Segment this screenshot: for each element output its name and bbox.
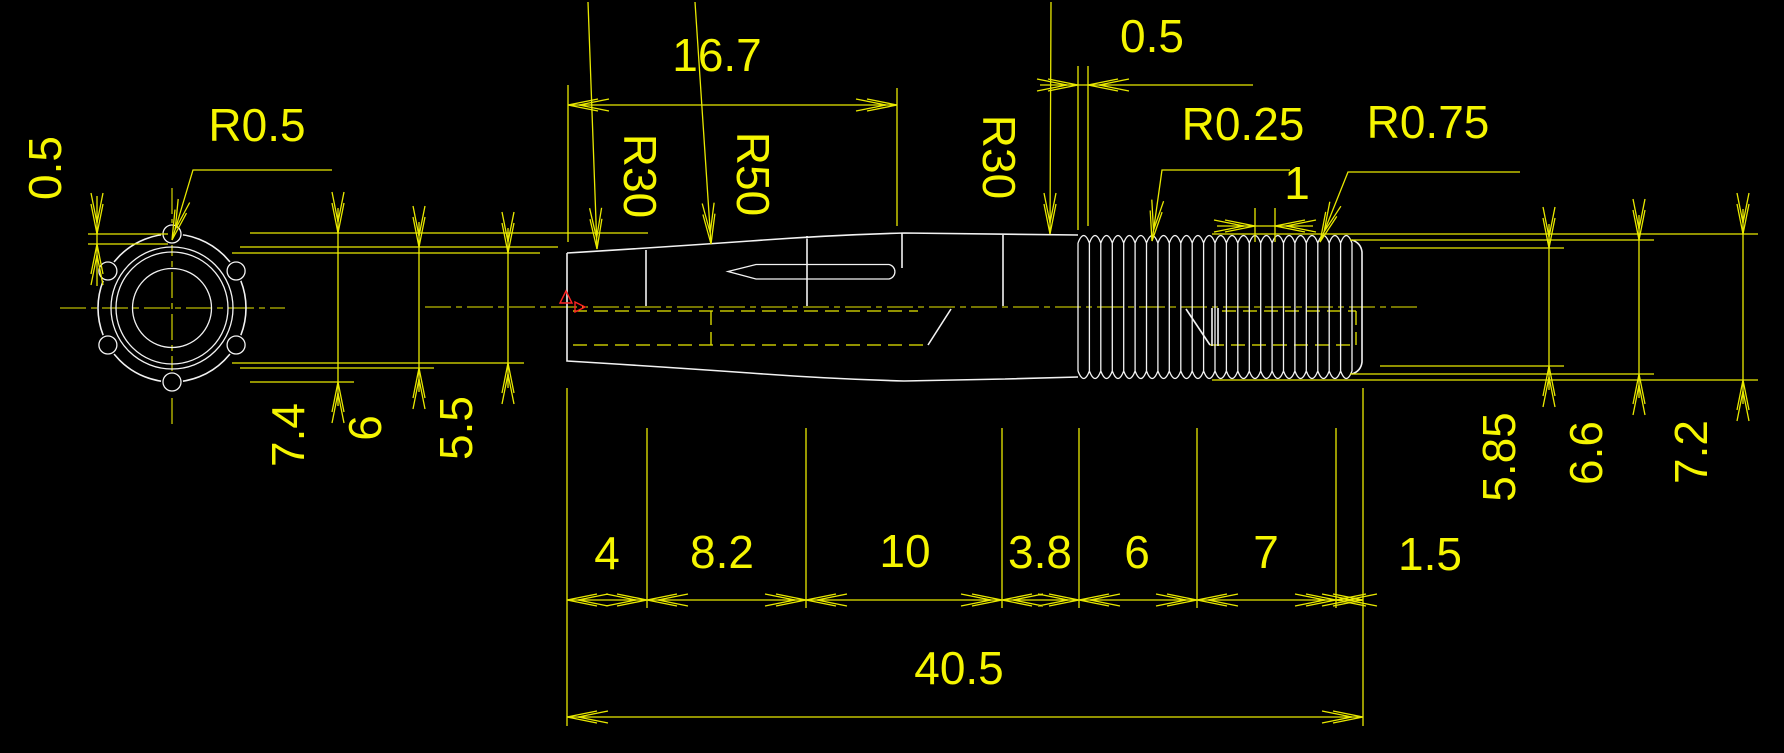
label-notch-depth: 0.5 — [22, 136, 68, 200]
origin-marker — [560, 291, 585, 312]
label-seg-7: 7 — [1253, 529, 1279, 575]
label-r075: R0.75 — [1367, 99, 1490, 145]
label-r025: R0.25 — [1182, 101, 1305, 147]
label-seg-8-2: 8.2 — [690, 529, 754, 575]
label-dia-5-5: 5.5 — [433, 396, 479, 460]
hidden-bore-lines — [573, 311, 1356, 345]
dimension-arrows — [91, 79, 1749, 723]
label-r30-rear: R30 — [976, 115, 1022, 199]
label-dia-6-6: 6.6 — [1563, 421, 1609, 485]
label-r50: R50 — [730, 132, 776, 216]
label-groove-width: 0.5 — [1120, 13, 1184, 59]
label-knurl-pitch: 1 — [1284, 160, 1310, 206]
label-overall-length: 40.5 — [914, 645, 1004, 691]
label-seg-1-5: 1.5 — [1398, 531, 1462, 577]
label-seg-4: 4 — [594, 530, 620, 576]
slot-outline — [728, 265, 895, 280]
label-dia-7-4: 7.4 — [265, 403, 311, 467]
label-seg-6: 6 — [1124, 529, 1150, 575]
label-dia-7-2: 7.2 — [1668, 420, 1714, 484]
centerline-axis — [60, 188, 1420, 428]
label-dia-6: 6 — [342, 415, 388, 441]
label-seg-10: 10 — [879, 528, 930, 574]
dimension-lines — [88, 2, 1758, 726]
label-tip-length: 16.7 — [672, 32, 762, 78]
label-seg-3-8: 3.8 — [1008, 529, 1072, 575]
label-notch-radius: R0.5 — [208, 102, 305, 148]
label-dia-5-85: 5.85 — [1476, 412, 1522, 502]
label-r30-front: R30 — [617, 134, 663, 218]
cad-viewport[interactable]: R0.5 0.5 16.7 R30 R50 R30 0.5 R0.25 R0.7… — [0, 0, 1784, 753]
